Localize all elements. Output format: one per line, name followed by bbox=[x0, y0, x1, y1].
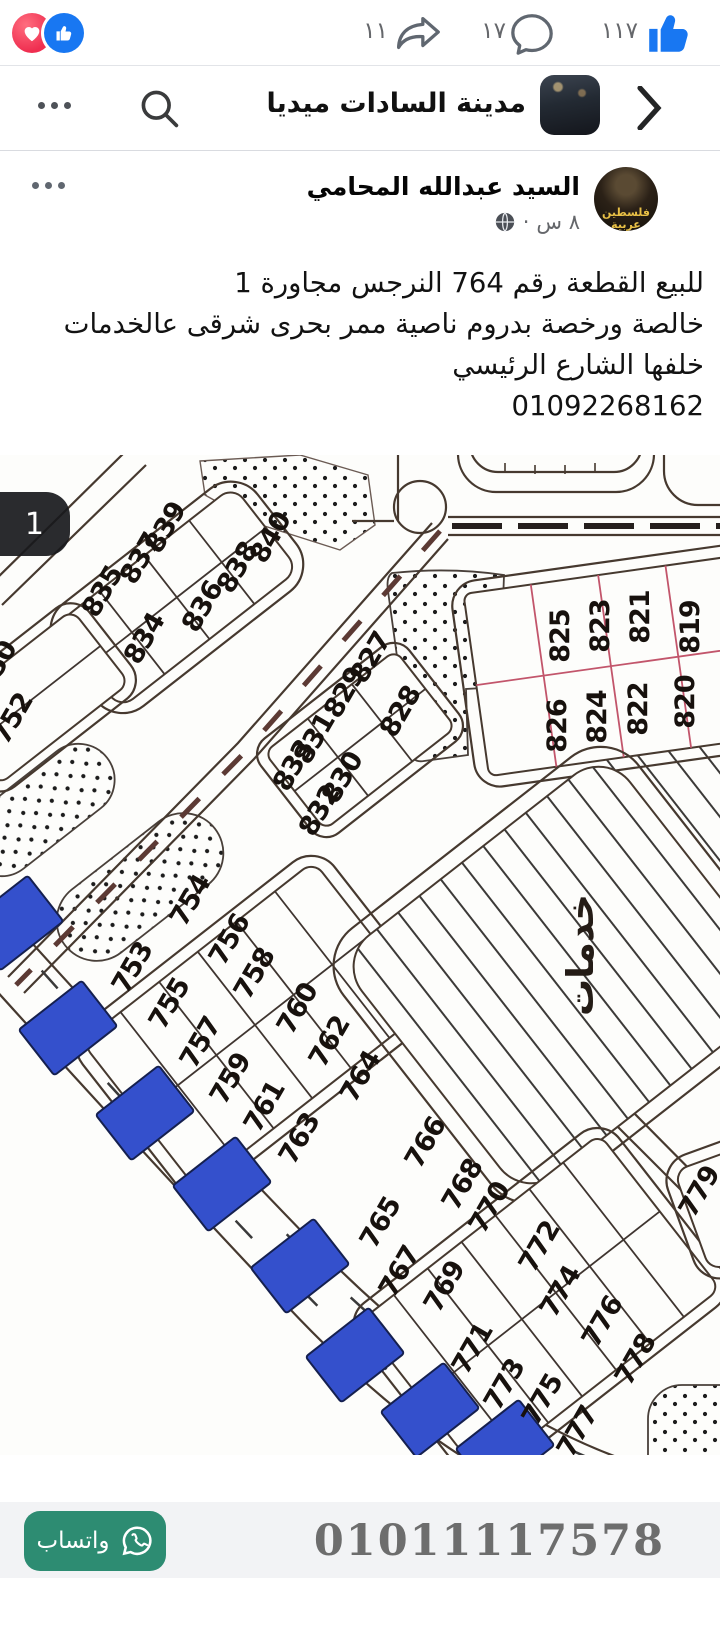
plot-number: 819 bbox=[675, 600, 706, 654]
search-icon[interactable] bbox=[137, 86, 181, 130]
services-plot-label: خدمات bbox=[559, 894, 602, 1016]
plot-number: 825 bbox=[545, 609, 576, 662]
author-name[interactable]: السيد عبدالله المحامي bbox=[307, 172, 580, 201]
like-reaction-badge[interactable] bbox=[44, 13, 84, 53]
reactions-summary-row: ١١ ١٧ ١١٧ bbox=[0, 0, 720, 66]
globe-icon bbox=[494, 211, 516, 233]
plot-map: خدمات 7507528358378398348368388408258238… bbox=[0, 455, 720, 1455]
share-icon[interactable] bbox=[394, 11, 444, 55]
post-text-line: للبيع القطعة رقم 764 النرجس مجاورة 1 bbox=[16, 263, 704, 304]
back-chevron-icon[interactable] bbox=[636, 86, 662, 130]
author-avatar[interactable]: فلسطين عربية bbox=[594, 167, 658, 231]
phone-number[interactable]: 01011117578 bbox=[314, 1516, 665, 1566]
plot-number: 822 bbox=[623, 682, 654, 735]
avatar-text: عربية bbox=[611, 219, 641, 231]
header-more-icon[interactable] bbox=[38, 102, 71, 109]
whatsapp-icon bbox=[120, 1524, 154, 1558]
post-text-line: خالصة ورخصة بدروم ناصية ممر بحرى شرقى عا… bbox=[16, 304, 704, 345]
page-header: مدينة السادات ميديا bbox=[0, 66, 720, 150]
whatsapp-button[interactable]: واتساب bbox=[24, 1511, 166, 1571]
share-count[interactable]: ١١ bbox=[363, 18, 388, 44]
post-meta: ٨ س · bbox=[494, 210, 580, 234]
plot-number: 821 bbox=[625, 590, 656, 643]
thumb-up-icon bbox=[54, 23, 74, 43]
post-text-line: 01092268162 bbox=[16, 386, 704, 427]
comment-icon[interactable] bbox=[508, 11, 556, 57]
like-count[interactable]: ١١٧ bbox=[601, 18, 638, 44]
plot-number: 826 bbox=[542, 699, 573, 753]
comment-count[interactable]: ١٧ bbox=[481, 18, 506, 44]
divider bbox=[0, 150, 720, 151]
photo-counter-value: 1 bbox=[25, 507, 44, 542]
page-title[interactable]: مدينة السادات ميديا bbox=[266, 88, 526, 119]
post-more-icon[interactable] bbox=[32, 182, 65, 189]
heart-icon bbox=[21, 22, 43, 44]
post-body: للبيع القطعة رقم 764 النرجس مجاورة 1 خال… bbox=[16, 263, 704, 427]
plot-number: 824 bbox=[582, 690, 613, 744]
post-time: ٨ س bbox=[536, 210, 580, 234]
plot-number: 823 bbox=[585, 599, 616, 652]
post-photo-map[interactable]: خدمات 7507528358378398348368388408258238… bbox=[0, 455, 720, 1455]
like-button-icon[interactable] bbox=[644, 8, 694, 58]
page-avatar[interactable] bbox=[540, 75, 600, 135]
meta-separator: · bbox=[523, 210, 530, 234]
photo-counter-badge: 1 bbox=[0, 492, 70, 556]
cta-bar: واتساب 01011117578 bbox=[0, 1502, 720, 1578]
facebook-post-screen: ١١ ١٧ ١١٧ مدينة السادات ميديا فلسطين عرب… bbox=[0, 0, 720, 1640]
plot-number: 820 bbox=[670, 675, 701, 729]
post-text-line: خلفها الشارع الرئيسي bbox=[16, 345, 704, 386]
whatsapp-label: واتساب bbox=[36, 1528, 109, 1554]
